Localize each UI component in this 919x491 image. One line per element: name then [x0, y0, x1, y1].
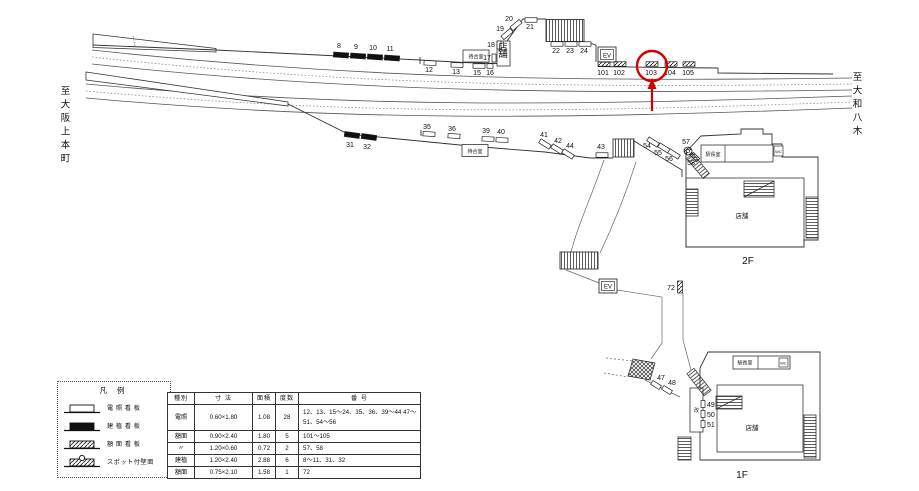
ad-number-17: 17 — [483, 55, 491, 62]
legend-box: 凡 例 電 照 看 板建 植 看 板額 面 看 板スポット付壁面 — [57, 381, 171, 478]
ad-number-105: 105 — [682, 70, 694, 77]
corridor-dashed-line — [604, 373, 628, 377]
ad-number-19: 19 — [496, 26, 504, 33]
ad-number-22: 22 — [552, 48, 560, 55]
table-cell-size: 0.90×2.40 — [195, 431, 253, 443]
corridor-wall — [683, 293, 691, 370]
elevator-upper: EV — [598, 47, 616, 62]
ad-number-103: 103 — [645, 70, 657, 77]
table-cell-count: 28 — [276, 405, 299, 431]
table-cell-count: 1 — [276, 467, 299, 479]
table-header-col-1: 寸 法 — [195, 393, 253, 405]
ad-marker-105 — [683, 62, 695, 67]
ticket-gate-label: 改 — [694, 407, 699, 414]
stairs-right-2f — [806, 197, 818, 238]
ad-marker-39 — [482, 136, 494, 141]
legend-item-spot: スポット付壁面 — [63, 455, 165, 468]
ad-marker-41 — [539, 139, 552, 149]
ad-number-12: 12 — [425, 67, 433, 74]
direction-label-left: 至大阪上本町 — [61, 86, 72, 165]
table-row-4: 額面0.75×2.101.58172 — [168, 467, 421, 479]
table-cell-area: 1.80 — [253, 431, 276, 443]
store-1f-label: 店舗 — [746, 423, 760, 432]
spot-symbol-icon — [63, 455, 101, 468]
sign-summary-table: 種別寸 法面積度数番 号 電照0.60×1.801.082812、13、15〜2… — [167, 392, 421, 479]
building-2f: 駅長室 WC 店舗 2F — [686, 129, 818, 267]
ad-marker-103 — [646, 62, 658, 67]
table-header-col-3: 度数 — [276, 393, 299, 405]
table-cell-numbers: 8〜11、31、32 — [299, 455, 421, 467]
ad-number-8: 8 — [337, 43, 341, 50]
ad-number-16: 16 — [486, 70, 494, 77]
legend-item-label: 建 植 看 板 — [107, 421, 140, 430]
ad-marker-15 — [473, 64, 485, 69]
ad-marker-17 — [492, 54, 496, 62]
ad-number-55: 55 — [654, 150, 662, 157]
ad-number-35: 35 — [423, 124, 431, 131]
ad-number-39: 39 — [482, 128, 490, 135]
table-cell-area: 0.72 — [253, 443, 276, 455]
table-cell-kind: 建植 — [168, 455, 195, 467]
ad-marker-50 — [701, 411, 705, 418]
table-cell-area: 1.08 — [253, 405, 276, 431]
ad-number-50: 50 — [707, 412, 715, 419]
floor-label-1f: 1F — [736, 470, 748, 481]
table-body: 電照0.60×1.801.082812、13、15〜24、35、36、39〜44… — [168, 405, 421, 479]
ad-marker-40 — [496, 137, 508, 142]
ad-marker-16 — [487, 64, 493, 69]
corridor-wall — [571, 160, 604, 252]
platform-end-tapers — [86, 34, 288, 106]
stairs-upper-platform — [546, 20, 584, 42]
ad-marker-23 — [565, 42, 577, 47]
ad-number-41: 41 — [540, 132, 548, 139]
ad-marker-22 — [551, 42, 563, 47]
legend-title: 凡 例 — [63, 385, 165, 396]
elevator-upper-label: EV — [603, 54, 611, 60]
stairs-right-1f — [804, 415, 816, 458]
ad-number-51: 51 — [707, 422, 715, 429]
table-cell-size: 0.60×1.80 — [195, 405, 253, 431]
ad-marker-21 — [525, 18, 537, 23]
table-cell-numbers: 57、58 — [299, 443, 421, 455]
kenshoku-symbol-icon — [63, 419, 101, 432]
legend-items: 電 照 看 板建 植 看 板額 面 看 板スポット付壁面 — [63, 401, 165, 468]
table-header-col-0: 種別 — [168, 393, 195, 405]
stairs-left-2f — [686, 189, 698, 216]
ad-number-13: 13 — [452, 69, 460, 76]
table-cell-numbers: 72 — [299, 467, 421, 479]
table-cell-area: 2.88 — [253, 455, 276, 467]
table-cell-size: 1.20×2.40 — [195, 455, 253, 467]
elevator-2f: EV — [599, 279, 617, 293]
ad-number-102: 102 — [613, 70, 625, 77]
ad-number-54: 54 — [643, 143, 651, 150]
ad-marker-57 — [684, 147, 692, 155]
table-cell-count: 6 — [276, 455, 299, 467]
ad-marker-72 — [678, 281, 683, 293]
track-rail — [86, 98, 852, 116]
corridor-wall — [600, 162, 636, 253]
upper-platform-edge — [93, 45, 497, 64]
ad-marker-101 — [598, 62, 610, 67]
ad-marker-9 — [350, 53, 365, 59]
ad-marker-10 — [367, 54, 382, 60]
station-office-1f-label: 駅長室 — [737, 360, 752, 367]
ad-number-36: 36 — [448, 126, 456, 133]
table-row-3: 建植1.20×2.402.8868〜11、31、32 — [168, 455, 421, 467]
legend-item-kenshoku: 建 植 看 板 — [63, 419, 165, 432]
densho-symbol-icon — [63, 401, 101, 414]
table-header-col-2: 面積 — [253, 393, 276, 405]
ad-number-43: 43 — [597, 144, 605, 151]
ad-number-47: 47 — [657, 375, 665, 382]
ad-number-32: 32 — [363, 144, 371, 151]
ad-number-72: 72 — [667, 285, 675, 292]
stairs-left-1f — [678, 437, 691, 460]
ad-number-58: 58 — [687, 160, 695, 167]
table-cell-kind: 額面 — [168, 431, 195, 443]
ad-number-9: 9 — [354, 44, 358, 51]
station-office-2f-label: 駅長室 — [705, 151, 720, 158]
table-cell-numbers: 101〜105 — [299, 431, 421, 443]
table-header-row: 種別寸 法面積度数番 号 — [168, 393, 421, 405]
table-cell-area: 1.58 — [253, 467, 276, 479]
elevator-2f-label: EV — [604, 285, 612, 291]
ad-number-11: 11 — [386, 46, 393, 53]
ad-marker-51 — [701, 421, 705, 428]
table-cell-kind: 電照 — [168, 405, 195, 431]
ad-marker-49 — [701, 401, 705, 408]
ad-marker-12 — [424, 60, 436, 65]
ad-marker-32 — [361, 133, 377, 140]
ad-number-31: 31 — [346, 142, 354, 149]
ad-marker-31 — [344, 131, 360, 138]
wc-1f-label: WC — [780, 361, 787, 366]
upper-platform-edge-right — [598, 67, 833, 75]
table-cell-size: 1.20×0.60 — [195, 443, 253, 455]
stairs-lower-platform — [613, 139, 634, 157]
ad-marker-44 — [562, 149, 575, 159]
table-cell-count: 5 — [276, 431, 299, 443]
table-header-col-4: 番 号 — [299, 393, 421, 405]
station-ad-location-diagram: 待合室 EV 待合室 EV 駅長室 WC — [0, 0, 919, 491]
table-row-1: 額面0.90×2.401.805101〜105 — [168, 431, 421, 443]
floor-label-2f: 2F — [742, 256, 754, 267]
ad-marker-36 — [448, 133, 460, 138]
ad-marker-102 — [614, 62, 626, 67]
ad-number-10: 10 — [369, 45, 377, 52]
ad-marker-35 — [423, 131, 435, 136]
table-cell-kind: 額面 — [168, 467, 195, 479]
ad-number-57: 57 — [682, 139, 690, 146]
ad-number-20: 20 — [505, 16, 513, 23]
table-cell-kind: 〃 — [168, 443, 195, 455]
kiosk-label: 店舗 — [498, 41, 509, 60]
ad-number-21: 21 — [526, 24, 534, 31]
track-rail — [92, 64, 852, 92]
ad-number-18: 18 — [487, 42, 495, 49]
ad-marker-43 — [596, 153, 608, 158]
ad-number-101: 101 — [597, 70, 609, 77]
waiting-room-lower-label: 待合室 — [467, 148, 482, 155]
corridor-dashed-line — [606, 358, 633, 361]
ad-marker-13 — [451, 63, 463, 68]
ad-marker-24 — [579, 42, 591, 47]
ad-number-56: 56 — [665, 156, 673, 163]
table-row-0: 電照0.60×1.801.082812、13、15〜24、35、36、39〜44… — [168, 405, 421, 431]
direction-label-right: 至大和八木 — [853, 72, 864, 137]
table-row-2: 〃1.20×0.600.72257、58 — [168, 443, 421, 455]
table-cell-count: 2 — [276, 443, 299, 455]
ad-number-23: 23 — [566, 48, 574, 55]
ramp-crosshatch — [628, 359, 655, 380]
legend-item-label: スポット付壁面 — [107, 457, 154, 466]
stairs-concourse-2f — [560, 252, 598, 269]
store-2f-label: 店舗 — [736, 211, 750, 220]
ad-number-15: 15 — [473, 70, 481, 77]
ad-number-42: 42 — [554, 138, 562, 145]
legend-item-gakumen: 額 面 看 板 — [63, 437, 165, 450]
legend-item-label: 額 面 看 板 — [107, 439, 140, 448]
ad-marker-8 — [333, 52, 348, 58]
ad-number-48: 48 — [668, 380, 676, 387]
ad-number-49: 49 — [707, 402, 715, 409]
ad-number-44: 44 — [566, 143, 574, 150]
legend-item-label: 電 照 看 板 — [107, 403, 140, 412]
wc-2f-label: WC — [775, 149, 782, 154]
building-1f: 駅長室 WC 改 店舗 1F — [645, 352, 820, 481]
ad-number-24: 24 — [580, 48, 588, 55]
ad-marker-11 — [384, 55, 399, 61]
table-cell-numbers: 12、13、15〜24、35、36、39〜44 47〜51、54〜56 — [299, 405, 421, 431]
gakumen-symbol-icon — [63, 437, 101, 450]
waiting-room-upper-label: 待合室 — [468, 54, 483, 61]
table-cell-size: 0.75×2.10 — [195, 467, 253, 479]
legend-item-densho: 電 照 看 板 — [63, 401, 165, 414]
ad-number-40: 40 — [497, 129, 505, 136]
